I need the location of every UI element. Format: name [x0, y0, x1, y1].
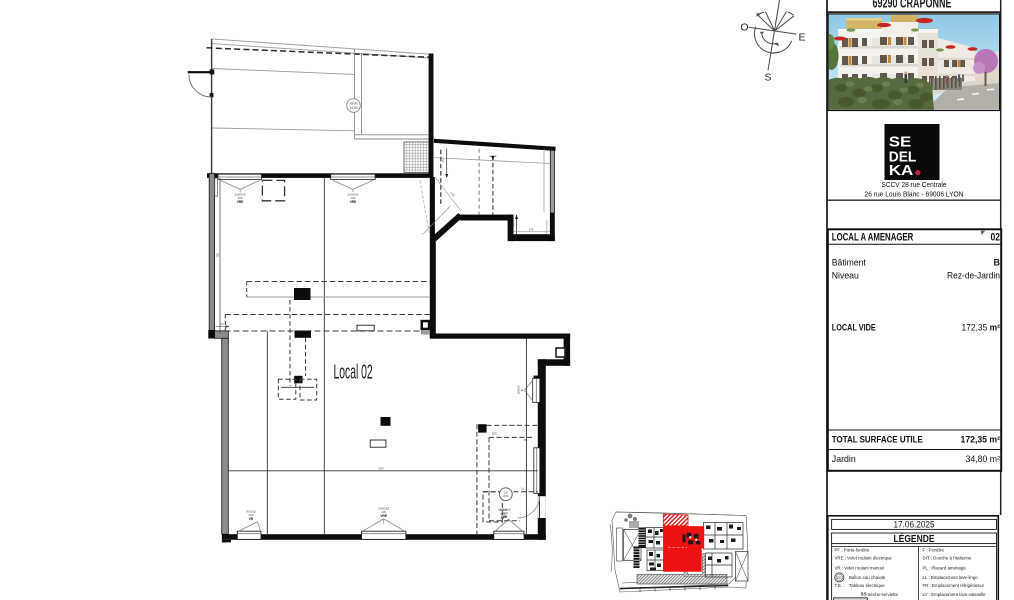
svg-text:E: E	[798, 32, 805, 44]
svg-text:SS: SS	[861, 592, 867, 597]
svg-text:LV : Emplacement lave-vaissell: LV : Emplacement lave-vaisselle	[923, 592, 987, 597]
svg-text:120: 120	[378, 466, 384, 470]
svg-text:CE: CE	[837, 576, 843, 580]
svg-text:Bâtiment: Bâtiment	[832, 258, 866, 268]
svg-text:PF : Porte-fenêtre: PF : Porte-fenêtre	[835, 547, 870, 552]
svg-text:LÉGENDE: LÉGENDE	[894, 532, 935, 545]
svg-text:LOCAL A AMENAGER: LOCAL A AMENAGER	[832, 231, 914, 243]
svg-text:LOCAL VIDE: LOCAL VIDE	[832, 323, 876, 334]
svg-text:34,80: 34,80	[350, 106, 358, 110]
svg-text:FR : Emplacement réfrigérateur: FR : Emplacement réfrigérateur	[923, 583, 985, 588]
svg-text:VRE: VRE	[380, 514, 387, 518]
svg-text:176: 176	[529, 228, 534, 232]
svg-text:KA: KA	[889, 162, 914, 179]
svg-text:PL: PL	[524, 438, 528, 442]
svg-text:O: O	[740, 22, 748, 34]
svg-text:16: 16	[441, 159, 445, 163]
svg-text:DIT : Douche à l'italienne: DIT : Douche à l'italienne	[923, 556, 972, 561]
svg-text:02: 02	[991, 231, 1001, 243]
svg-text:VR : Volet roulant manuel: VR : Volet roulant manuel	[835, 565, 885, 570]
svg-text:172,35 m²: 172,35 m²	[962, 323, 1001, 333]
svg-text:Tableau électrique: Tableau électrique	[849, 583, 885, 588]
svg-text:172,35 m²: 172,35 m²	[961, 434, 1001, 444]
svg-text:Jardin: Jardin	[349, 102, 358, 106]
svg-text:PL : Placard aménagé: PL : Placard aménagé	[923, 565, 967, 570]
svg-text:VR: VR	[249, 517, 254, 521]
svg-text:LL: LL	[521, 487, 525, 491]
svg-text:Jardin: Jardin	[832, 454, 856, 464]
svg-text:LL : Emplacement lave-linge: LL : Emplacement lave-linge	[923, 575, 979, 580]
svg-text:Rez-de-Jardin: Rez-de-Jardin	[947, 271, 1000, 281]
svg-text:Ballon eau chaude: Ballon eau chaude	[849, 575, 886, 580]
svg-text:DIT: DIT	[492, 432, 497, 436]
svg-text:VRE: VRE	[237, 200, 244, 204]
svg-text:S: S	[764, 71, 771, 83]
svg-text:Local 02: Local 02	[334, 361, 373, 384]
svg-text:B: B	[994, 258, 1001, 268]
svg-text:34,80 m²: 34,80 m²	[966, 454, 1001, 464]
svg-text:SCCV 28 rue Centrale: SCCV 28 rue Centrale	[882, 180, 947, 189]
svg-text:69290 CRAPONNE: 69290 CRAPONNE	[873, 0, 952, 11]
svg-text:26 rue Louis Blanc - 69006 LYO: 26 rue Louis Blanc - 69006 LYON	[865, 189, 964, 198]
svg-text:PF: PF	[501, 516, 505, 520]
svg-text:F : Fenêtre: F : Fenêtre	[923, 547, 945, 552]
svg-text:17.06.2025: 17.06.2025	[894, 520, 935, 531]
svg-text:VRE : Volet roulant électrique: VRE : Volet roulant électrique	[835, 556, 893, 561]
svg-text:VRE: VRE	[350, 200, 357, 204]
svg-text:300l: 300l	[503, 494, 509, 498]
svg-text:T.E. :: T.E. :	[835, 583, 845, 588]
svg-text:TOTAL SURFACE UTILE: TOTAL SURFACE UTILE	[832, 434, 923, 445]
svg-text:20: 20	[220, 322, 224, 326]
svg-text:50: 50	[216, 253, 220, 257]
svg-text:Sèche-serviette: Sèche-serviette	[868, 592, 899, 597]
svg-text:16: 16	[511, 223, 515, 227]
svg-text:F: F	[520, 389, 524, 391]
svg-text:Niveau: Niveau	[832, 271, 859, 281]
